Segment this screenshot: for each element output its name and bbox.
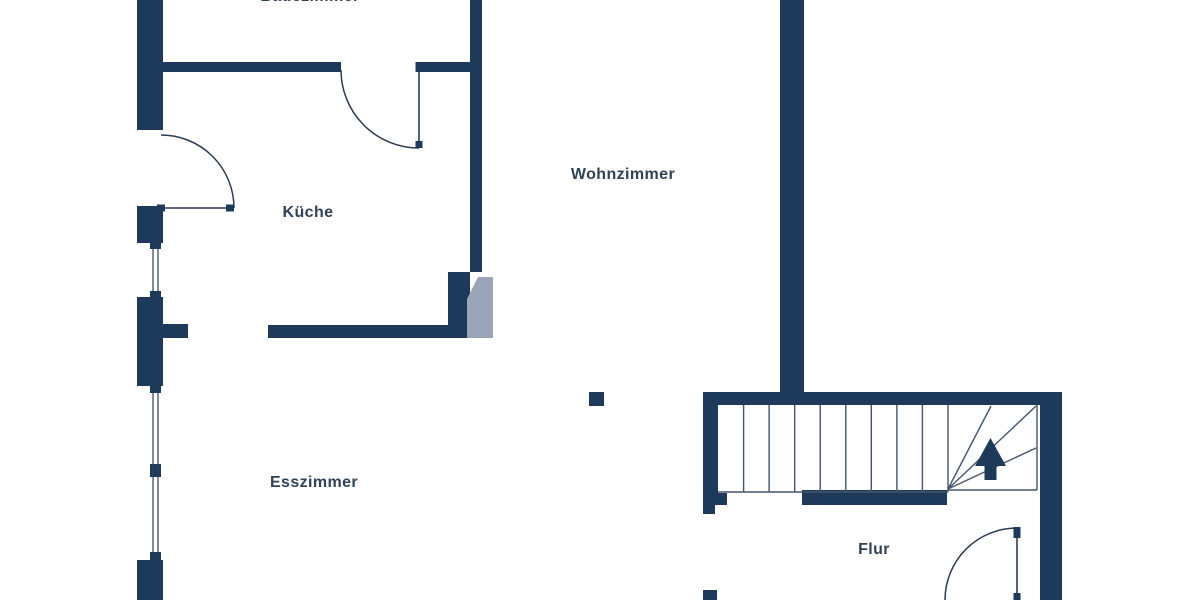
door-jamb [416, 141, 423, 148]
wall-left-top [137, 0, 163, 130]
wall-left-bottom [137, 560, 163, 600]
wall-kitchen-south [268, 325, 483, 338]
door-jamb [416, 62, 423, 72]
room-label-kueche: Küche [283, 204, 334, 222]
wall-stairs-foot-stub [703, 505, 715, 514]
wall-left-mid-2 [137, 297, 163, 386]
room-label-wohnzimmer: Wohnzimmer [571, 166, 675, 184]
wall-hall-stub [703, 590, 717, 600]
wall-stairs-west [703, 405, 718, 493]
wall-bath-south-left [163, 62, 341, 72]
bathroom-door [341, 62, 423, 148]
wall-kitchen-east [470, 0, 482, 272]
kitchen-door [157, 135, 234, 212]
wall-kitchen-corner-block [448, 272, 470, 325]
wall-stairs-north [703, 392, 1062, 405]
door-jamb [157, 205, 165, 212]
room-label-flur: Flur [858, 541, 890, 559]
floor-plan: Badezimmer Küche Wohnzimmer Esszimmer Fl… [0, 0, 1200, 600]
wall-stairs-foot [703, 493, 727, 505]
door-jamb [226, 205, 234, 212]
hall-door [945, 527, 1021, 600]
walls [137, 0, 1062, 600]
wall-left-mid-1 [137, 206, 163, 243]
floor-plan-canvas [0, 0, 1200, 600]
room-label-esszimmer: Esszimmer [270, 474, 358, 492]
wall-livingroom-east [780, 0, 804, 392]
esszimmer-window-lower [150, 386, 161, 560]
wall-east-exterior [1040, 392, 1062, 600]
wall-chamfer-shade [467, 277, 493, 338]
wall-bath-south-right [419, 62, 470, 72]
room-label-badezimmer: Badezimmer [260, 0, 359, 6]
door-jamb [1014, 527, 1021, 538]
wall-left-stub [137, 324, 188, 338]
esszimmer-window-upper [150, 243, 161, 297]
pillar [589, 392, 604, 406]
door-jamb [1014, 593, 1021, 600]
